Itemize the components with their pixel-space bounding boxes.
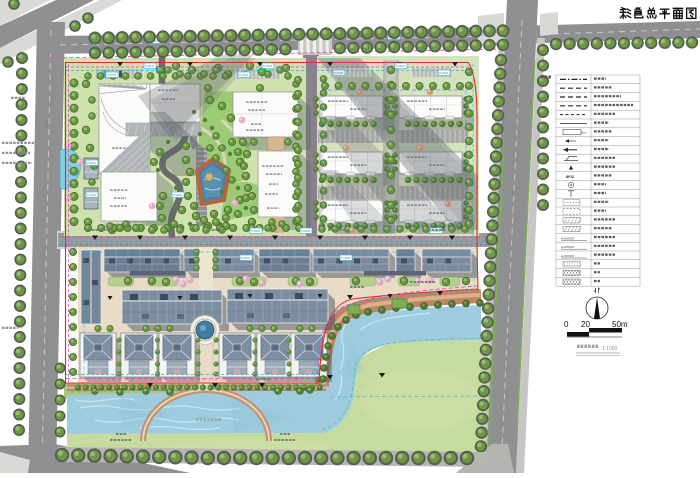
svg-text:A-XXXXX: A-XXXXX [561, 254, 574, 258]
svg-text:P=2000: P=2000 [251, 229, 261, 233]
svg-text:P=2000: P=2000 [263, 64, 273, 68]
svg-text:20: 20 [581, 320, 590, 329]
svg-text:0: 0 [564, 320, 569, 329]
svg-text:A-XXXXX: A-XXXXX [561, 236, 574, 240]
svg-text:P=2000: P=2000 [87, 161, 97, 165]
svg-text:5m: 5m [582, 131, 587, 135]
svg-text:8F/2: 8F/2 [566, 174, 575, 179]
svg-text:P=2000: P=2000 [173, 193, 183, 197]
svg-text:P=2000: P=2000 [107, 73, 117, 77]
svg-text:P=2000: P=2000 [396, 64, 406, 68]
svg-text:P=2000: P=2000 [145, 64, 155, 68]
svg-text:1:1000: 1:1000 [602, 346, 618, 352]
svg-text:P=2000: P=2000 [87, 193, 97, 197]
svg-text:P=2000: P=2000 [341, 256, 351, 260]
svg-text:30m: 30m [45, 120, 49, 127]
svg-text:P=2000: P=2000 [301, 229, 311, 233]
svg-text:P=2000: P=2000 [241, 256, 251, 260]
svg-text:P=2000: P=2000 [439, 71, 449, 75]
svg-text:P=2000: P=2000 [239, 73, 249, 77]
svg-text:A-XXXXX: A-XXXXX [561, 245, 574, 249]
svg-text:30m: 30m [510, 190, 515, 197]
svg-text:50m: 50m [612, 320, 628, 329]
